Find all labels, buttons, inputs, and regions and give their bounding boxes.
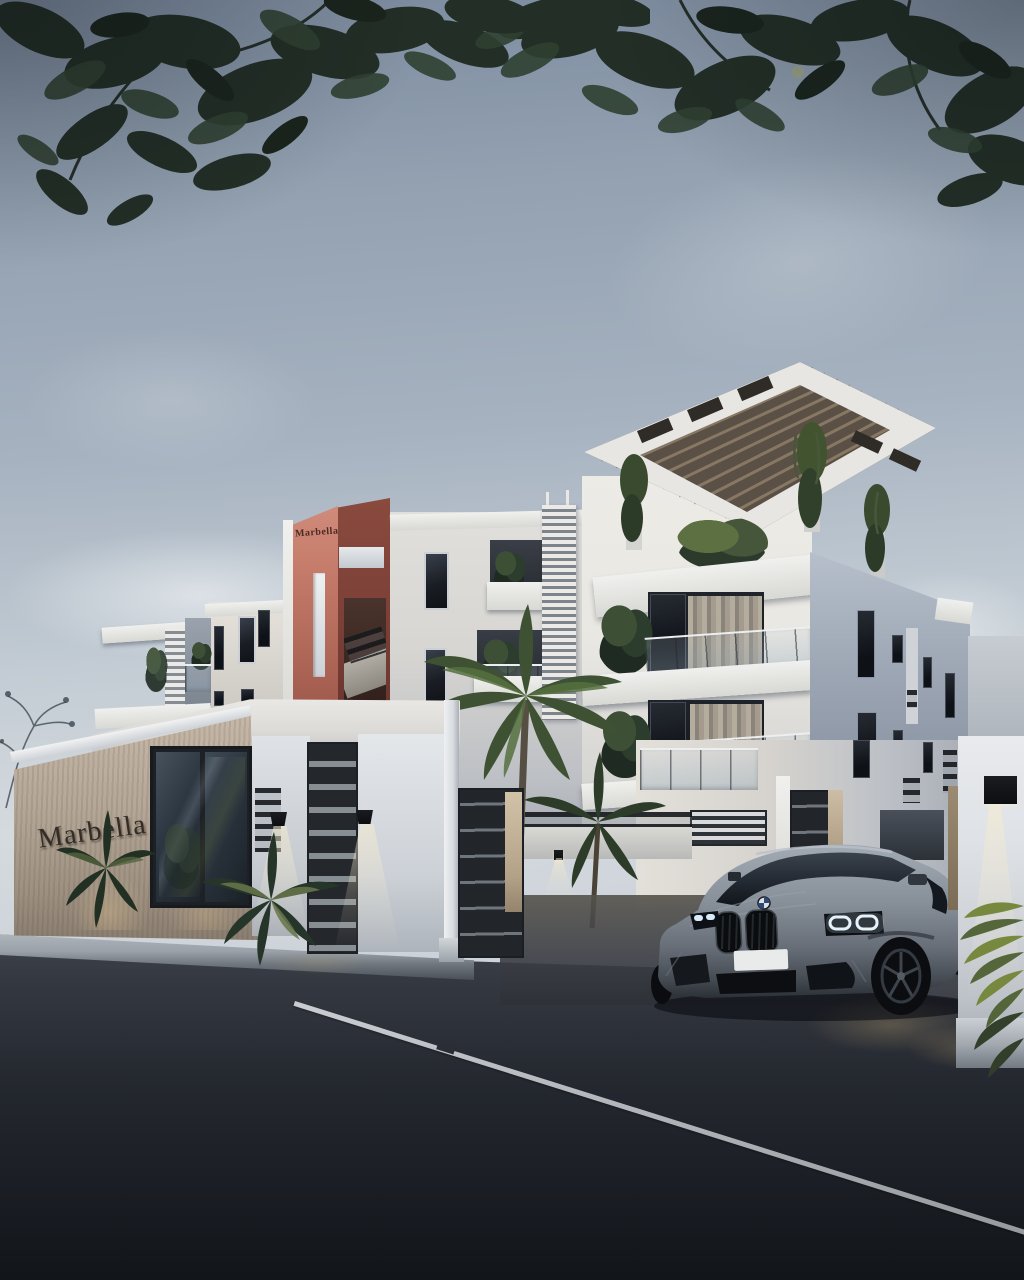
front-palm-shrub-left xyxy=(56,798,156,938)
stair-bridge-white-band xyxy=(339,547,384,568)
bmw-suv xyxy=(646,826,970,1022)
side-window-c1 xyxy=(923,657,932,688)
left-building-window-narrow xyxy=(214,626,224,670)
pillar-wall-lamp xyxy=(984,776,1017,804)
left-building-window-small-a xyxy=(214,691,224,706)
overhanging-foliage-top-right xyxy=(430,0,1024,225)
side-window-d1 xyxy=(945,673,955,718)
front-palm-shrub-right xyxy=(196,822,346,972)
side-ac-louver xyxy=(907,690,917,708)
foreground-palm-fronds xyxy=(936,846,1024,1086)
side-window-b1 xyxy=(892,635,903,663)
entrance-wall-lamp-right xyxy=(356,810,373,824)
tower-slot-window xyxy=(313,573,325,677)
side-window-a1 xyxy=(857,610,875,678)
vehicle-gate-wood-panel xyxy=(505,792,522,912)
bg-window-tall-b xyxy=(923,742,933,773)
left-building-window-tall xyxy=(238,616,256,664)
bg-vent-louver-a xyxy=(903,778,920,803)
architectural-render-scene: Marbella xyxy=(0,0,1024,1280)
side-pilaster xyxy=(906,628,918,724)
left-building-window-upper xyxy=(258,610,270,647)
canopy-post xyxy=(444,700,459,956)
side-roof-hedge xyxy=(872,560,946,606)
bg-window-tall-a xyxy=(853,740,870,778)
background-wall-right xyxy=(968,636,1024,746)
cloud-streak-mid xyxy=(0,300,380,500)
